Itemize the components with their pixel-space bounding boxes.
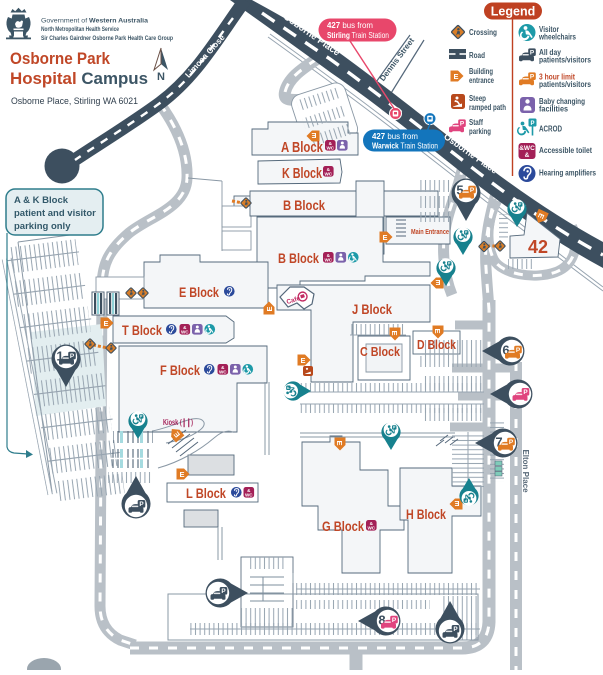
svg-text:Building: Building — [469, 67, 493, 76]
svg-text:Crossing: Crossing — [469, 28, 497, 37]
svg-text:North Metropolitan Health Serv: North Metropolitan Health Service — [41, 26, 119, 33]
svg-text:Legend: Legend — [491, 5, 535, 19]
svg-text:F Block: F Block — [160, 362, 200, 378]
svg-text:A & K Block: A & K Block — [14, 195, 69, 206]
svg-text:P: P — [530, 121, 534, 127]
svg-text:H Block: H Block — [406, 506, 446, 522]
svg-text:Sir Charles Gairdner Osborne P: Sir Charles Gairdner Osborne Park Health… — [41, 35, 173, 42]
svg-text:ramped path: ramped path — [469, 103, 506, 112]
svg-text:T Block: T Block — [122, 322, 162, 338]
svg-text:Kiosk (❙❙): Kiosk (❙❙) — [163, 417, 193, 428]
svg-text:K Block: K Block — [282, 165, 322, 182]
svg-text:ACROD: ACROD — [539, 125, 562, 134]
svg-text:Osborne Park: Osborne Park — [10, 49, 110, 68]
svg-text:Elton Place: Elton Place — [521, 449, 530, 493]
svg-text:G Block: G Block — [322, 518, 364, 534]
svg-text:Road: Road — [469, 51, 485, 60]
svg-text:L Block: L Block — [186, 485, 226, 501]
svg-text:Main Entrance: Main Entrance — [411, 227, 449, 236]
svg-text:D Block: D Block — [417, 337, 457, 352]
svg-text:Staff: Staff — [469, 118, 483, 127]
svg-text:427 bus from: 427 bus from — [327, 21, 373, 30]
svg-text:Hearing amplifiers: Hearing amplifiers — [539, 169, 596, 178]
svg-text:427 bus from: 427 bus from — [372, 132, 418, 141]
svg-text:patients/visitors: patients/visitors — [539, 56, 591, 65]
svg-text:Steep: Steep — [469, 94, 486, 103]
svg-text:B Block: B Block — [278, 250, 319, 266]
svg-text:B Block: B Block — [283, 197, 325, 213]
svg-text:parking only: parking only — [14, 221, 71, 232]
svg-text:Government of Western Australi: Government of Western Australia — [41, 18, 149, 25]
svg-text:N: N — [157, 71, 165, 83]
svg-text:42: 42 — [528, 237, 548, 257]
svg-text:A Block: A Block — [281, 139, 323, 156]
svg-text:facilities: facilities — [539, 105, 568, 114]
svg-text:Stirling Train Station: Stirling Train Station — [327, 31, 389, 40]
svg-text:patient and visitor: patient and visitor — [14, 208, 96, 219]
svg-text:Accessible toilet: Accessible toilet — [539, 146, 592, 155]
svg-text:C Block: C Block — [360, 344, 401, 359]
svg-text:Osborne Place, Stirling WA 602: Osborne Place, Stirling WA 6021 — [11, 96, 138, 106]
svg-text:entrance: entrance — [469, 76, 494, 85]
svg-text:patients/visitors: patients/visitors — [539, 80, 591, 89]
svg-text:&: & — [525, 152, 530, 159]
svg-text:E Block: E Block — [179, 284, 219, 300]
svg-text:wheelchairs: wheelchairs — [538, 33, 576, 42]
svg-text:parking: parking — [469, 127, 491, 136]
svg-text:&WC: &WC — [519, 145, 535, 152]
svg-text:J Block: J Block — [352, 301, 392, 317]
svg-text:Warwick Train Station: Warwick Train Station — [372, 142, 438, 151]
svg-text:Hospital Campus: Hospital Campus — [10, 69, 148, 88]
